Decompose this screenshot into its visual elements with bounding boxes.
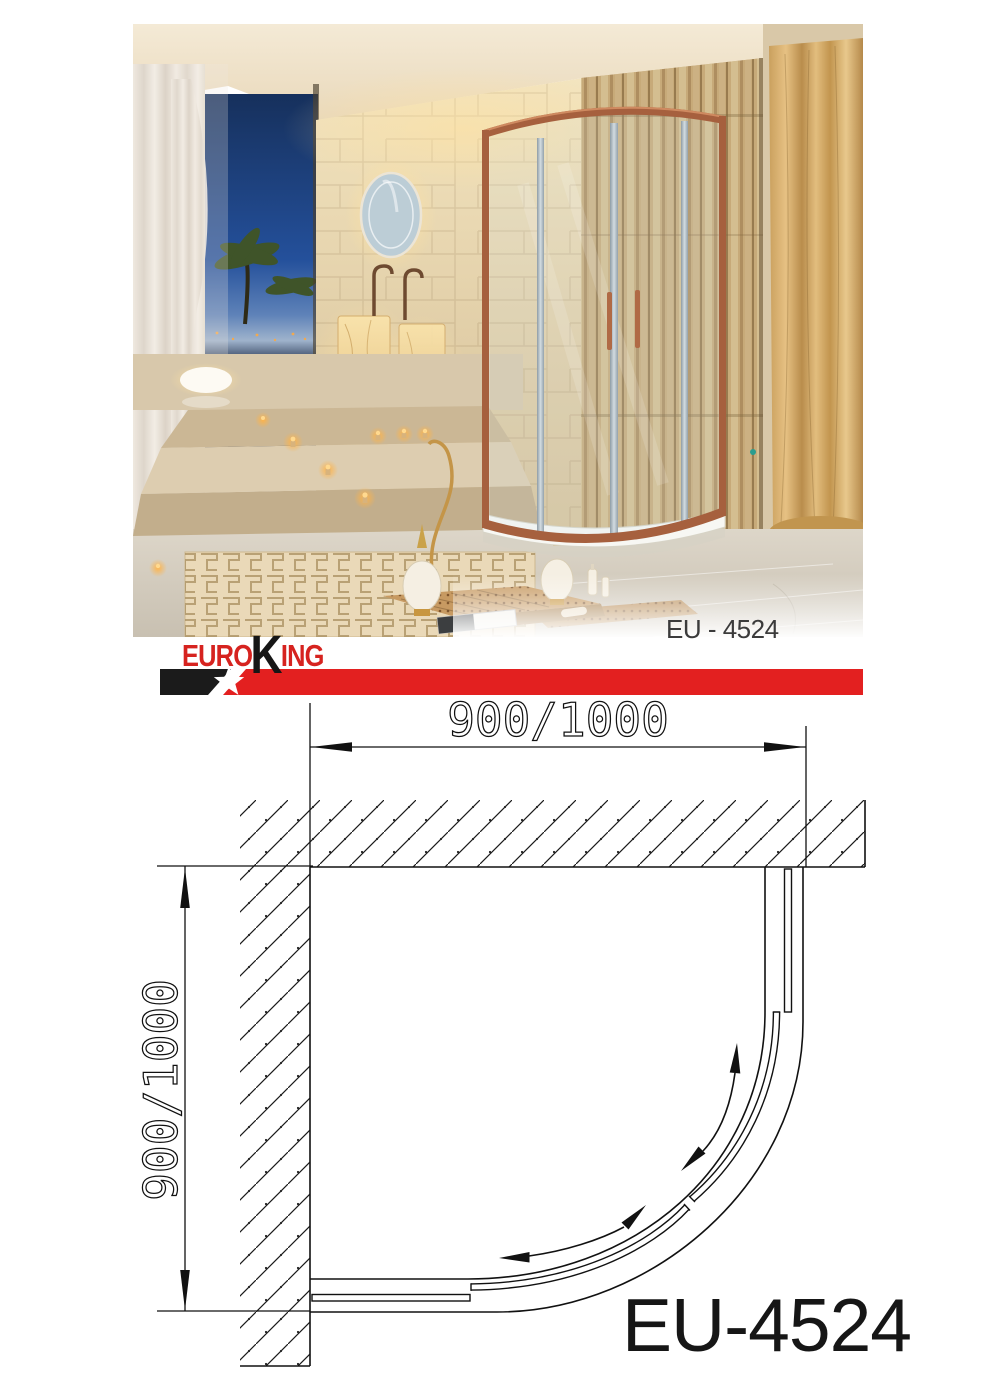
logo-k-text: K: [251, 625, 283, 685]
depth-dimension-label: 900/1000: [134, 979, 188, 1201]
product-photo: [133, 24, 863, 637]
diagram-area: 900/1000 900/1000: [0, 640, 1000, 1386]
shower-enclosure: [482, 108, 726, 558]
plan-sliding-doors: [471, 1012, 780, 1291]
width-dimension-label: 900/1000: [447, 693, 669, 747]
door-direction-arrows: [499, 1043, 740, 1263]
photo-caption: EU - 4524: [666, 614, 779, 645]
plan-fixed-panels: [312, 869, 792, 1301]
logo-ing-text: ING: [281, 638, 324, 673]
brand-logo: EUROKING: [182, 621, 324, 683]
model-label: EU-4524: [622, 1288, 911, 1363]
teal-accent: [750, 449, 756, 455]
round-mirror: [345, 158, 437, 272]
plan-glass-track: [310, 867, 803, 1312]
logo-euro-text: EURO: [182, 638, 252, 673]
photo-fade: [453, 574, 863, 637]
